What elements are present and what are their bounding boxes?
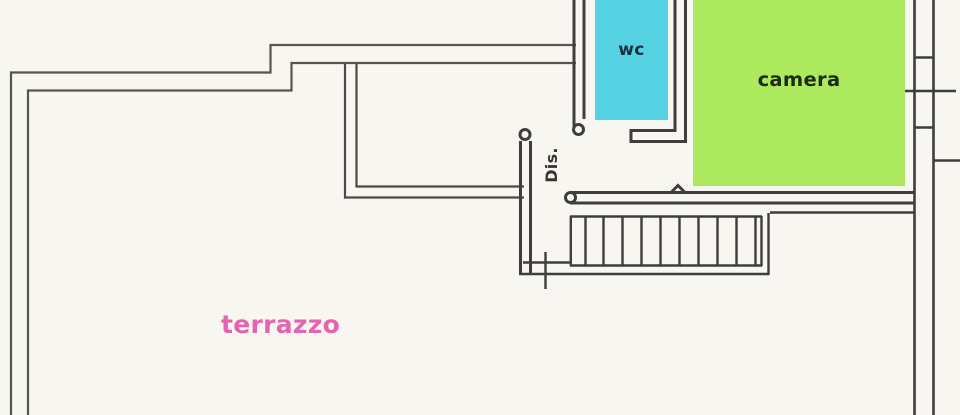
floorplan-canvas: wc camera Dis. terrazzo (0, 0, 960, 415)
right-wall-window (905, 0, 960, 415)
terrace-parapet-lines (11, 45, 576, 415)
room-label-dis: Dis. (542, 140, 568, 190)
staircase (519, 213, 915, 290)
room-highlights (595, 0, 905, 186)
camera-room-highlight (693, 0, 905, 186)
inner-deck-lines (345, 64, 524, 198)
wall-end-cap (566, 193, 576, 203)
wall-end-cap (520, 130, 530, 140)
floorplan-drawing (0, 0, 960, 415)
room-label-terrazzo: terrazzo (221, 310, 340, 339)
wall-end-cap (574, 125, 584, 135)
room-label-wc: wc (595, 40, 668, 60)
wc-room-highlight (595, 0, 668, 120)
room-label-camera: camera (693, 68, 905, 91)
